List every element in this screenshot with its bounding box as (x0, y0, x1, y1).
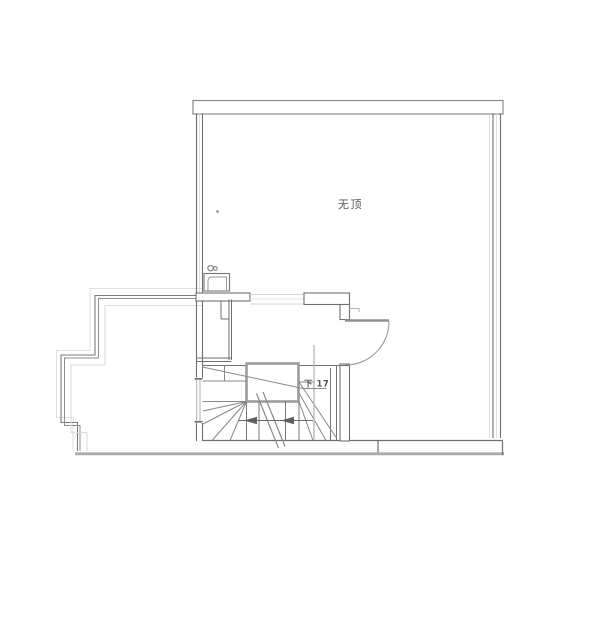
top-wall-bar (193, 101, 503, 115)
stair-west-window (194, 378, 204, 424)
door-jamb-lower (340, 364, 350, 441)
door-swing (345, 321, 389, 366)
faucet-knob-right (213, 267, 217, 271)
upper-treads (203, 366, 247, 402)
inner-wall-bar-right (304, 293, 350, 305)
walk-arrow-left (244, 417, 257, 424)
door-arc (346, 322, 390, 366)
railing-dark-line-1 (61, 296, 203, 452)
floor-plan-svg: 无顶 下 17 (0, 0, 610, 630)
door-threshold-tick (350, 309, 360, 313)
closet-partition (221, 300, 232, 361)
railing-outer-light-line (57, 289, 204, 451)
terrace-railing (57, 289, 204, 452)
sink-fixture (204, 266, 230, 292)
closet-bottom-wall (197, 358, 232, 362)
door-jamb-upper (340, 305, 350, 320)
inner-wall-bar-left (196, 293, 250, 301)
room-label: 无顶 (338, 198, 363, 211)
stair-landing (247, 364, 299, 402)
bottom-edge (75, 441, 504, 456)
stair-assembly (203, 345, 350, 448)
faucet-knob-left (208, 266, 213, 271)
point-marker (216, 210, 219, 213)
walk-arrow-right (281, 417, 294, 424)
window-mask (194, 378, 204, 424)
floor-plan: 无顶 下 17 (0, 0, 610, 630)
railing-dark-line-2 (65, 299, 204, 452)
stair-direction-label: 下 17 (304, 380, 329, 390)
railing-inner-light-line (71, 306, 203, 452)
